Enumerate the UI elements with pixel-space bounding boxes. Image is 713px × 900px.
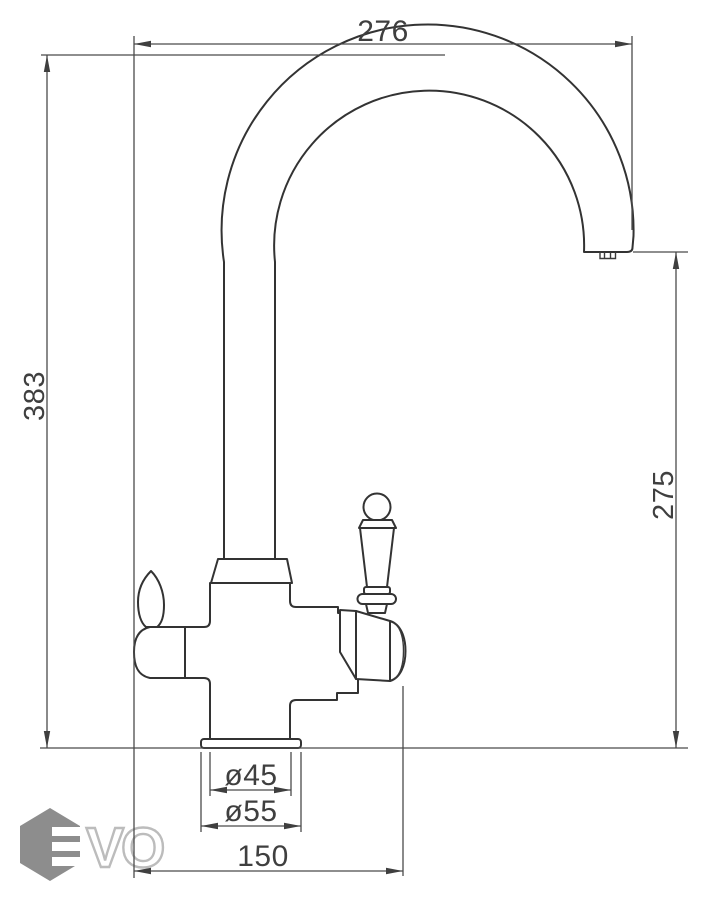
right-handle-body bbox=[360, 528, 394, 587]
drawing-canvas: VO bbox=[0, 0, 713, 900]
logo-e-bar-middle bbox=[52, 842, 88, 851]
arrowhead-top bbox=[44, 55, 50, 72]
right-handle bbox=[358, 494, 397, 614]
faucet-technical-drawing: VO bbox=[0, 0, 713, 900]
logo-e-bar-top bbox=[52, 827, 88, 836]
arrowhead-right bbox=[284, 823, 301, 829]
dim-label-275: 275 bbox=[648, 470, 680, 520]
arrowhead-left bbox=[134, 41, 151, 47]
riser-cone bbox=[211, 559, 292, 583]
dim-label-383: 383 bbox=[19, 371, 51, 421]
faucet-body bbox=[134, 583, 358, 742]
gooseneck-spout bbox=[222, 24, 634, 559]
dimension-base-inner-45: ø45 bbox=[210, 752, 291, 796]
arrowhead-right bbox=[386, 868, 403, 874]
faucet-outline bbox=[134, 24, 634, 748]
dim-label-d45: ø45 bbox=[224, 759, 277, 792]
valve-assembly bbox=[340, 610, 406, 681]
arrowhead-bottom bbox=[673, 731, 679, 748]
dim-label-150: 150 bbox=[237, 840, 289, 873]
dimension-outlet-height-275: 275 bbox=[633, 252, 688, 748]
right-handle-ball bbox=[364, 494, 391, 521]
logo-e-bar-bottom bbox=[52, 857, 88, 866]
right-handle-base-ring bbox=[358, 594, 397, 604]
arrowhead-top bbox=[673, 252, 679, 269]
left-lever-handle bbox=[138, 571, 164, 627]
right-handle-collar bbox=[359, 520, 396, 528]
right-handle-stem bbox=[366, 604, 387, 613]
right-handle-band bbox=[364, 587, 390, 594]
dim-label-d55: ø55 bbox=[224, 795, 277, 828]
arrowhead-left bbox=[201, 823, 218, 829]
dim-label-276: 276 bbox=[357, 15, 409, 48]
arrowhead-right bbox=[615, 41, 632, 47]
valve-cone bbox=[356, 611, 390, 681]
base-flange bbox=[201, 739, 301, 748]
arrowhead-bottom bbox=[44, 731, 50, 748]
